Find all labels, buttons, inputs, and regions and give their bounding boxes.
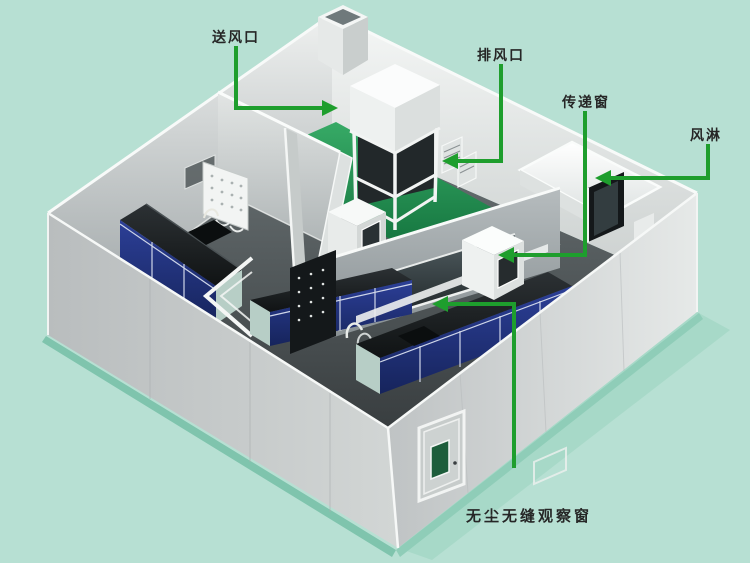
cleanroom-scene: 送风口 排风口 传递窗 风淋 无尘无缝观察窗 (0, 0, 750, 563)
label-pass-through-window: 传递窗 (561, 94, 610, 110)
door-handle (453, 461, 457, 465)
label-air-shower: 风淋 (690, 127, 722, 143)
cleanroom-diagram: 送风口 排风口 传递窗 风淋 无尘无缝观察窗 (0, 0, 750, 563)
label-observation-window: 无尘无缝观察窗 (465, 507, 592, 525)
duct-column (318, 5, 368, 75)
label-exhaust-vent: 排风口 (477, 47, 525, 63)
entry-door (419, 411, 464, 501)
label-supply-air-vent: 送风口 (211, 29, 260, 45)
pass-box (462, 226, 524, 300)
door-window (431, 440, 449, 479)
